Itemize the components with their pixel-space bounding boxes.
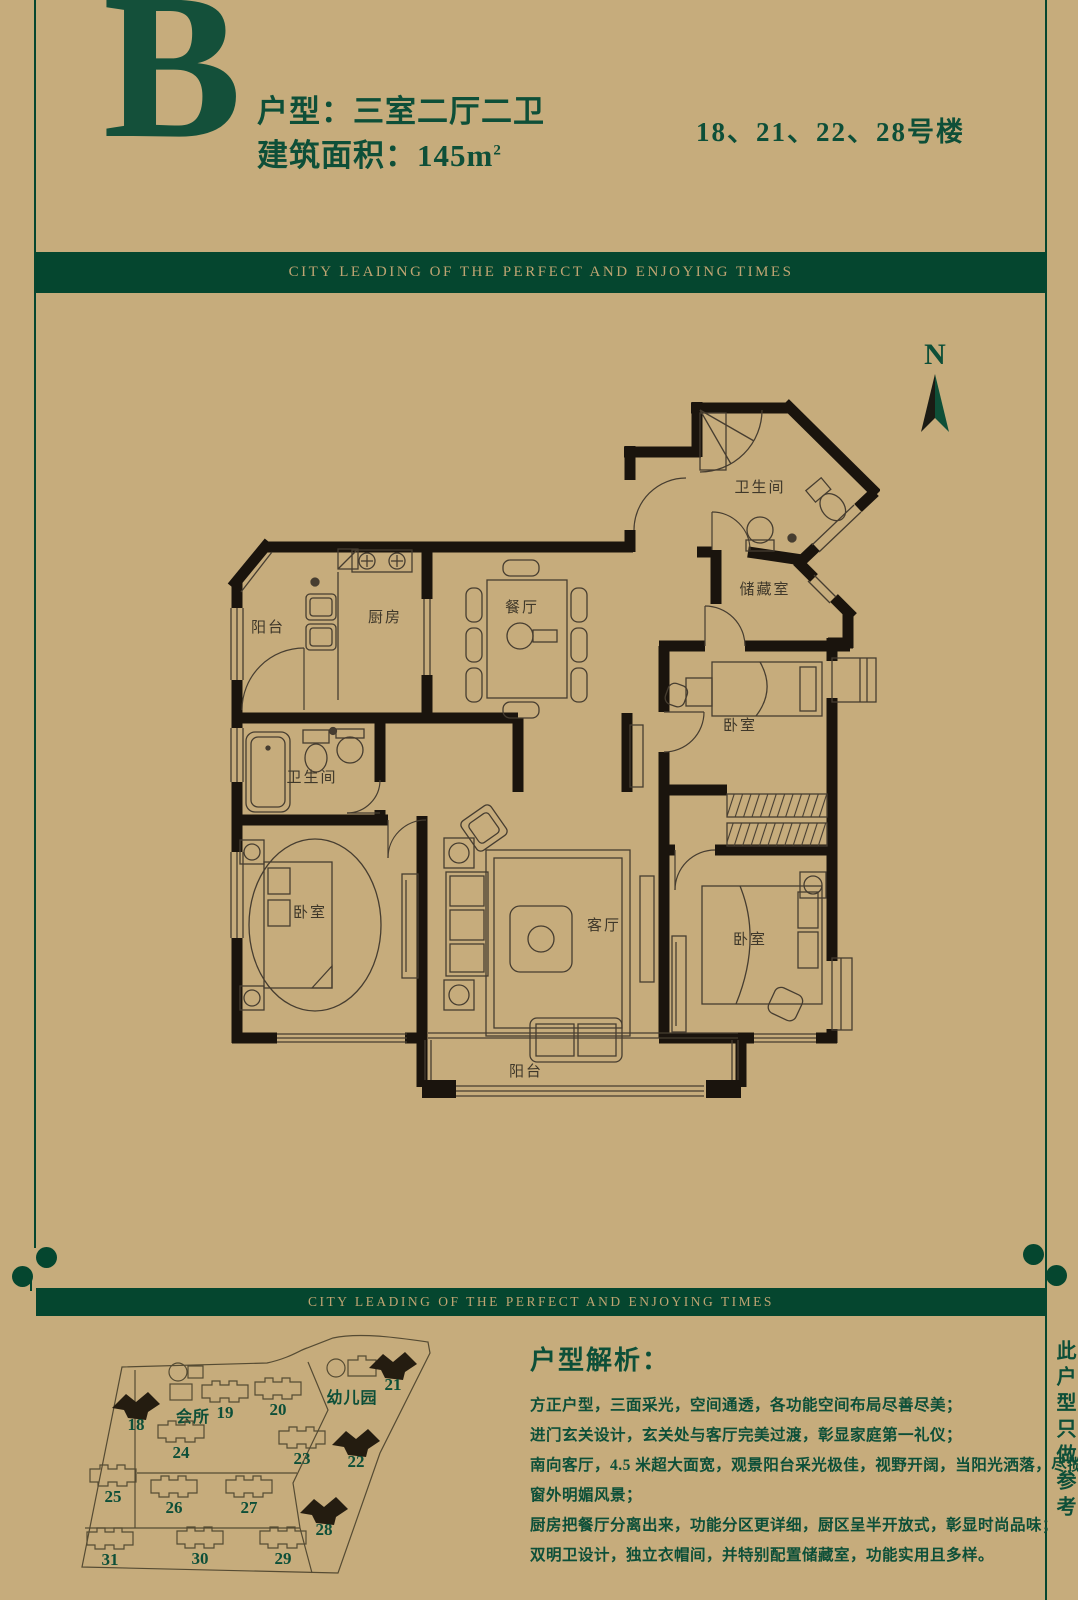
compass-arrow-right [935, 374, 949, 432]
room-label-kitchen: 厨房 [368, 609, 402, 626]
balcony-corners [422, 1080, 741, 1098]
room-label-storage: 储藏室 [739, 581, 790, 598]
analysis-line: 窗外明媚风景； [530, 1481, 1050, 1511]
room-label-balcony-top: 阳台 [251, 619, 285, 636]
sitemap-building-25: 25 [90, 1465, 136, 1506]
bottom-banner: CITY LEADING OF THE PERFECT AND ENJOYING… [36, 1288, 1046, 1316]
unit-type-label: 户型：三室二厅二卫 [257, 86, 545, 131]
sitemap-building-number: 19 [217, 1403, 234, 1422]
area-text: 建筑面积：145m [257, 138, 493, 173]
compass-arrow-left [921, 374, 935, 432]
analysis-title: 户型解析： [530, 1340, 1050, 1377]
sitemap-building-30: 30 [177, 1527, 223, 1568]
room-label-bath-left: 卫生间 [286, 769, 337, 786]
buildings-label: 18、21、22、28号楼 [696, 110, 965, 149]
area-label: 建筑面积：145m2 [257, 130, 502, 175]
sitemap-building-22: 22 [332, 1429, 380, 1471]
top-banner: CITY LEADING OF THE PERFECT AND ENJOYING… [36, 252, 1046, 293]
sitemap-building-number: 22 [348, 1452, 365, 1471]
left-border-stub [30, 1277, 32, 1291]
right-border-dot-2 [1046, 1265, 1067, 1286]
analysis-line: 厨房把餐厅分离出来，功能分区更详细，厨区呈半开放式，彰显时尚品味； [530, 1511, 1050, 1541]
analysis-line: 南向客厅，4.5 米超大面宽，观景阳台采光极佳，视野开阔，当阳光洒落，尽揽 [530, 1451, 1050, 1481]
analysis-lines: 方正户型，三面采光，空间通透，各功能空间布局尽善尽美；进门玄关设计，玄关处与客厅… [530, 1391, 1050, 1571]
sitemap-building-number: 24 [173, 1443, 191, 1462]
sitemap-building-number: 18 [128, 1415, 145, 1434]
top-banner-text: CITY LEADING OF THE PERFECT AND ENJOYING… [289, 264, 794, 281]
side-note: 此户型只做参考 [1050, 1340, 1078, 1570]
sitemap-building-number: 21 [385, 1375, 402, 1394]
sitemap-building-24: 24 [158, 1421, 204, 1462]
sitemap-building-20: 20 [255, 1378, 301, 1419]
room-label-bedroom-left: 卧室 [293, 904, 327, 921]
floorplan: 卫生间 储藏室 阳台 厨房 餐厅 卫生间 卧室 客厅 卧室 卧室 阳台 [200, 380, 880, 1140]
sitemap-roads [82, 1335, 430, 1573]
sitemap-building-27: 27 [226, 1476, 272, 1517]
sitemap-building-number: 31 [102, 1550, 119, 1569]
room-label-bedroom-right-top: 卧室 [723, 717, 757, 734]
left-border-line [34, 0, 36, 1248]
sitemap-building-number: 20 [270, 1400, 287, 1419]
sitemap-kindergarten-label: 幼儿园 [326, 1388, 377, 1407]
room-label-dining: 餐厅 [505, 599, 539, 616]
left-border-dot-1 [36, 1247, 57, 1268]
north-compass: N [908, 334, 964, 436]
walls [232, 402, 877, 1087]
analysis-block: 户型解析： 方正户型，三面采光，空间通透，各功能空间布局尽善尽美；进门玄关设计，… [530, 1340, 1050, 1571]
analysis-line: 进门玄关设计，玄关处与客厅完美过渡，彰显家庭第一礼仪； [530, 1421, 1050, 1451]
unit-letter: B [103, 0, 238, 170]
sitemap-building-number: 28 [316, 1520, 333, 1539]
sitemap: 会所 幼儿园 1819202124232225262728313029 [60, 1330, 460, 1600]
sitemap-building-number: 23 [294, 1449, 311, 1468]
sitemap-building-23: 23 [279, 1427, 325, 1468]
sitemap-building-29: 29 [260, 1527, 306, 1568]
sitemap-buildings: 1819202124232225262728313029 [87, 1352, 417, 1569]
area-exponent: 2 [493, 143, 502, 159]
room-label-living: 客厅 [587, 917, 621, 934]
analysis-line: 方正户型，三面采光，空间通透，各功能空间布局尽善尽美； [530, 1391, 1050, 1421]
right-border-dot-1 [1023, 1244, 1044, 1265]
analysis-line: 双明卫设计，独立衣帽间，并特别配置储藏室，功能实用且多样。 [530, 1541, 1050, 1571]
room-label-bedroom-right-bottom: 卧室 [733, 931, 767, 948]
sitemap-building-26: 26 [151, 1476, 197, 1517]
sitemap-building-number: 26 [166, 1498, 183, 1517]
sitemap-building-31: 31 [87, 1528, 133, 1569]
sitemap-building-number: 25 [105, 1487, 122, 1506]
sitemap-building-18: 18 [112, 1392, 160, 1434]
sitemap-building-28: 28 [300, 1497, 348, 1539]
room-label-bath-top: 卫生间 [734, 479, 785, 496]
sitemap-building-number: 27 [241, 1498, 259, 1517]
furniture [240, 410, 851, 1062]
room-label-balcony-bottom: 阳台 [509, 1063, 543, 1080]
bottom-banner-text: CITY LEADING OF THE PERFECT AND ENJOYING… [308, 1294, 774, 1310]
compass-n-label: N [924, 338, 946, 371]
sitemap-building-number: 30 [192, 1549, 209, 1568]
sitemap-building-number: 29 [275, 1549, 292, 1568]
